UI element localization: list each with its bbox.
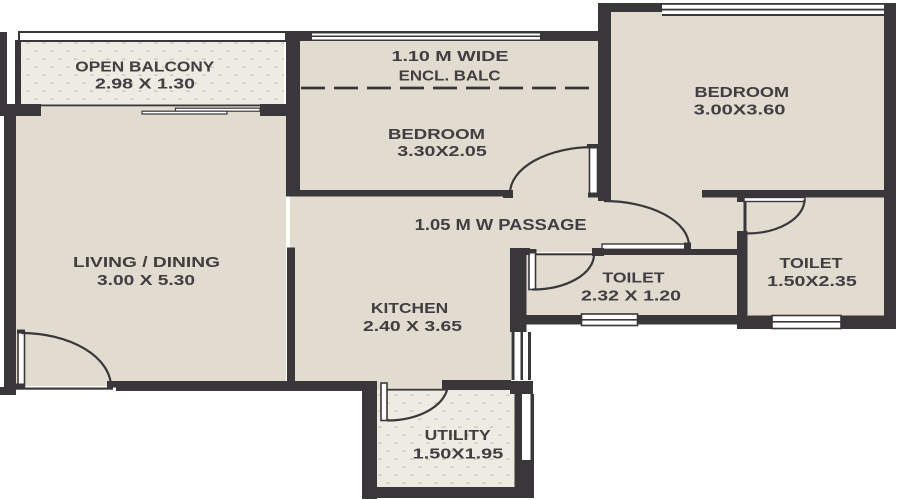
svg-text:BEDROOM: BEDROOM bbox=[388, 126, 485, 143]
svg-text:3.00 X 5.30: 3.00 X 5.30 bbox=[97, 272, 195, 289]
svg-text:BEDROOM: BEDROOM bbox=[695, 84, 790, 101]
svg-text:OPEN BALCONY: OPEN BALCONY bbox=[75, 59, 214, 76]
svg-text:2.40 X 3.65: 2.40 X 3.65 bbox=[363, 318, 462, 335]
svg-text:KITCHEN: KITCHEN bbox=[371, 300, 448, 317]
svg-text:2.98 X 1.30: 2.98 X 1.30 bbox=[95, 76, 195, 93]
svg-text:ENCL. BALC: ENCL. BALC bbox=[399, 68, 501, 85]
svg-text:2.32 X 1.20: 2.32 X 1.20 bbox=[581, 288, 681, 305]
svg-text:1.50X2.35: 1.50X2.35 bbox=[767, 273, 857, 290]
svg-text:UTILITY: UTILITY bbox=[425, 427, 491, 444]
svg-text:1.05 M W PASSAGE: 1.05 M W PASSAGE bbox=[415, 217, 587, 234]
svg-text:1.10 M WIDE: 1.10 M WIDE bbox=[392, 48, 509, 65]
svg-text:3.30X2.05: 3.30X2.05 bbox=[397, 143, 487, 160]
svg-text:LIVING / DINING: LIVING / DINING bbox=[73, 254, 220, 271]
svg-text:TOILET: TOILET bbox=[780, 255, 843, 272]
svg-text:1.50X1.95: 1.50X1.95 bbox=[413, 446, 504, 463]
svg-text:3.00X3.60: 3.00X3.60 bbox=[694, 102, 786, 119]
svg-text:TOILET: TOILET bbox=[603, 270, 665, 287]
